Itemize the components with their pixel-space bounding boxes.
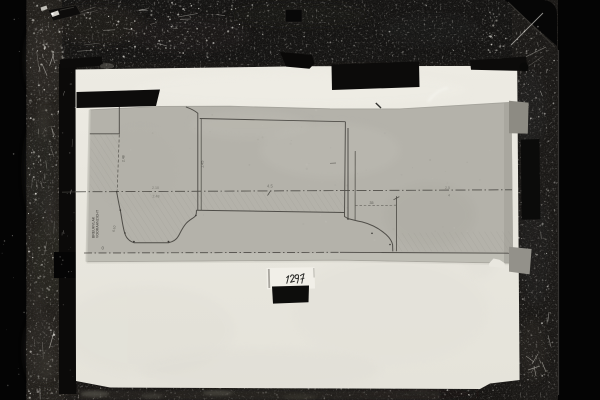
svg-text:35: 35: [370, 201, 374, 205]
svg-text:4.5: 4.5: [267, 184, 273, 189]
svg-text:2.10: 2.10: [152, 186, 159, 190]
svg-text:1.45: 1.45: [201, 161, 205, 168]
svg-text:2.5: 2.5: [445, 186, 450, 190]
svg-text:2.48: 2.48: [122, 155, 126, 162]
svg-text:VOORAANZICHT: VOORAANZICHT: [96, 210, 100, 238]
svg-text:4: 4: [448, 194, 450, 198]
svg-text:2.48: 2.48: [153, 195, 160, 199]
